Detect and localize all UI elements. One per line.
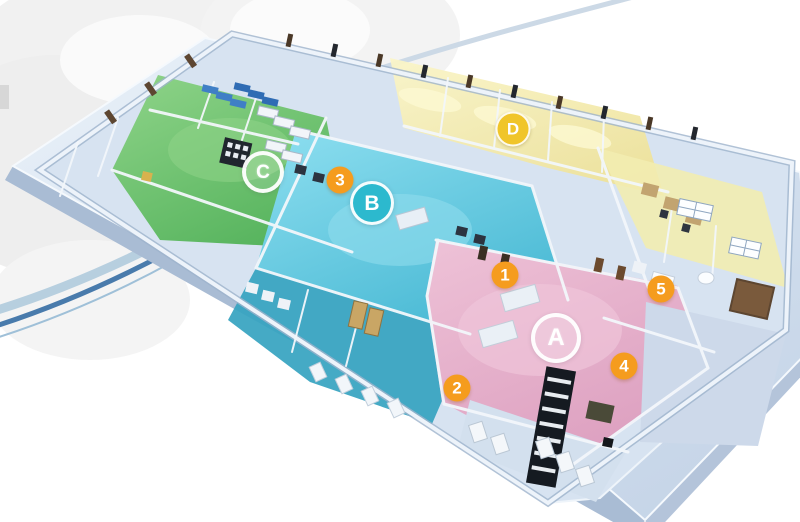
background-edge-mark: [0, 85, 9, 109]
room-marker-5-label: 5: [656, 281, 665, 298]
room-marker-3-label: 3: [335, 172, 344, 189]
room-marker-1: 1: [492, 262, 519, 289]
zone-marker-b: B: [350, 181, 394, 225]
floorplan-scene: A B C D 1 2 3 4 5: [0, 0, 800, 522]
zone-marker-c-label: C: [256, 163, 270, 182]
zone-marker-d: D: [496, 112, 531, 147]
room-marker-1-label: 1: [500, 267, 509, 284]
room-marker-4: 4: [611, 353, 638, 380]
zone-marker-a-label: A: [547, 326, 564, 350]
room-marker-3: 3: [327, 167, 354, 194]
room-marker-2: 2: [444, 375, 471, 402]
room-marker-2-label: 2: [452, 380, 461, 397]
zone-marker-b-label: B: [364, 193, 379, 214]
room-marker-4-label: 4: [619, 358, 628, 375]
building-illustration: [0, 0, 800, 522]
zone-marker-d-label: D: [507, 121, 519, 138]
zone-marker-c: C: [242, 151, 284, 193]
room-marker-5: 5: [648, 276, 675, 303]
zone-marker-a: A: [531, 313, 581, 363]
